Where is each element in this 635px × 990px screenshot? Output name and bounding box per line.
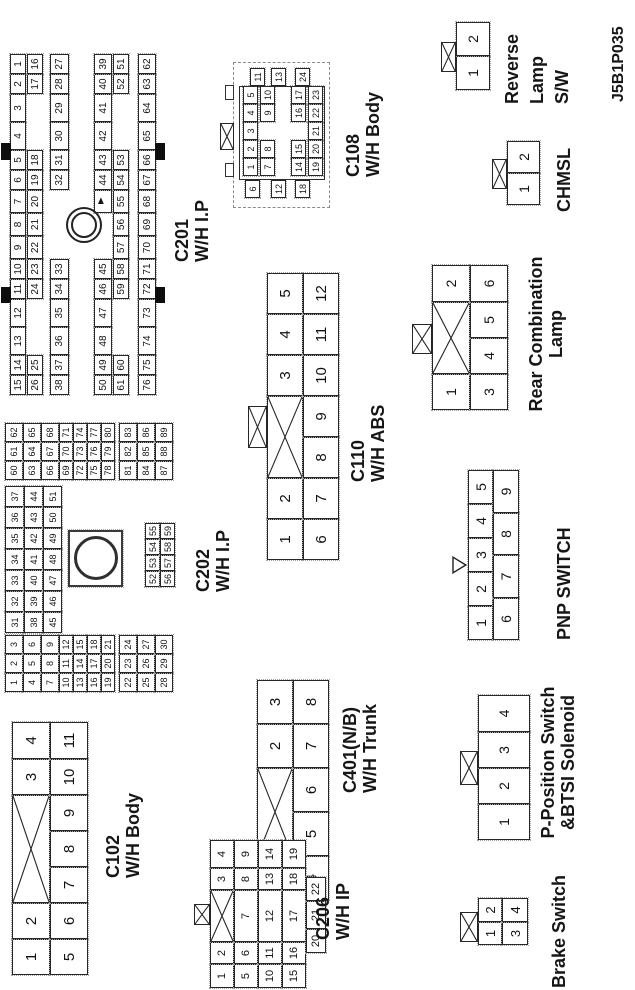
pin-cell: 9 <box>41 635 59 654</box>
pin-cell: 85 <box>137 442 155 461</box>
pin-cell: 12 <box>59 635 73 654</box>
pin-cell: 19 <box>101 673 115 692</box>
pin-cell: 54 <box>113 170 129 190</box>
diagram-board: J5B1P035 1514131211109876543212625242322… <box>0 0 635 990</box>
pin-cell: 5 <box>470 302 508 338</box>
pin-cell: 45 <box>43 612 62 633</box>
pin-cell: 11 <box>59 654 73 673</box>
pin-cell: 57 <box>113 236 129 259</box>
pin-cell: 6 <box>470 265 508 302</box>
pin-cell: 3 <box>468 538 493 572</box>
pin-row: 789 <box>41 635 59 692</box>
pin-cell: 81 <box>119 461 137 480</box>
pin-cell: 3 <box>5 635 23 654</box>
pin-cell: 1 <box>456 56 490 90</box>
pin-cell: 4 <box>23 673 41 692</box>
pin-cell: 38 <box>50 375 69 395</box>
pin-cell: 11 <box>10 279 26 299</box>
pin-cell: 15 <box>282 964 306 988</box>
connector-label-line: C401(N/B) <box>340 704 360 793</box>
pin-cell: 2 <box>478 768 530 804</box>
pin-cell: 10 <box>59 673 73 692</box>
pin-cell: 2 <box>267 478 303 519</box>
keyway-tab-icon <box>460 912 478 942</box>
pin-cell: 8 <box>10 213 26 236</box>
pin-row: 636465 <box>23 423 41 480</box>
connector-label-line: Lamp <box>546 243 566 425</box>
pin-cell: 7 <box>303 478 339 519</box>
pin-cell: 78 <box>101 461 115 480</box>
pin-cell: 37 <box>5 486 24 507</box>
pin-row: 767574737271706968676665646362 <box>138 54 156 395</box>
pin-cell: 51 <box>113 54 129 74</box>
pin-row: 456 <box>23 635 41 692</box>
pin-cell: 40 <box>94 74 112 94</box>
pin-cell: 9 <box>303 396 339 437</box>
pin-cell: 13 <box>10 327 26 355</box>
pin-cell: 19 <box>27 170 43 190</box>
pin-row: 2625242322212019181716 <box>27 54 43 395</box>
connector-label-line: W/H I.P <box>192 200 212 262</box>
pin-cell: 33 <box>50 259 69 279</box>
pin-cell: 14 <box>10 355 26 375</box>
pin-cell: 44 <box>24 486 43 507</box>
pin-cell: 60 <box>5 461 23 480</box>
pin-cell: 9 <box>50 795 88 831</box>
pin-cell: 11 <box>258 942 282 964</box>
pin-gap <box>113 299 129 355</box>
pin-cell: 3 <box>478 732 530 768</box>
keyway-cross-icon <box>432 302 470 374</box>
pin-cell: 71 <box>59 423 73 442</box>
pin-cell: 76 <box>138 375 156 395</box>
orientation-mark-icon <box>94 190 112 213</box>
pin-row: 787980 <box>101 423 115 480</box>
pin-cell: 50 <box>94 375 112 395</box>
pin-cell: 39 <box>94 54 112 74</box>
pin-cell: 67 <box>138 170 156 190</box>
pin-cell: 2 <box>478 898 502 922</box>
connector-label-line: C206 <box>313 883 333 940</box>
pin-cell: 1 <box>468 606 493 640</box>
pin-cell: 75 <box>138 355 156 375</box>
pin-cell: 65 <box>138 122 156 150</box>
pin-row: 1234 <box>12 722 50 975</box>
mount-tab <box>155 143 165 160</box>
index-triangle-icon <box>452 556 467 574</box>
keyway-cross-icon <box>210 890 234 942</box>
pin-cell: 69 <box>59 461 73 480</box>
pin-row: 252627 <box>137 635 155 692</box>
pin-row: 31323334353637 <box>5 486 24 633</box>
connector-label: ReverseLampS/W <box>500 34 575 104</box>
connector-label: C206W/H IP <box>313 883 353 940</box>
pin-cell: 36 <box>50 327 69 355</box>
pin-cell: 9 <box>493 470 519 513</box>
pin-cell: 6 <box>234 942 258 964</box>
connector-label-line: P-Position Switch <box>538 670 558 855</box>
pin-cell: 48 <box>94 327 112 355</box>
pin-cell: 5 <box>10 150 26 170</box>
connector-label-line: Rear Combination <box>526 243 546 425</box>
pin-row: 1234 <box>210 840 234 988</box>
pin-cell: 53 <box>113 150 129 170</box>
connector-label-line: W/H I.P <box>213 530 233 592</box>
pin-cell: 44 <box>94 170 112 190</box>
connector-label: C401(N/B)W/H Trunk <box>340 704 380 793</box>
pin-cell: 5 <box>50 939 88 975</box>
pin-row: 6789 <box>493 470 519 640</box>
pin-cell: 40 <box>24 570 43 591</box>
page-id: J5B1P035 <box>610 26 628 102</box>
connector-label-line: W/H Body <box>363 92 383 177</box>
pin-cell: 16 <box>27 54 43 74</box>
pin-cell: 4 <box>470 338 508 374</box>
pin-cell: 4 <box>12 722 50 759</box>
pin-cell: 13 <box>73 673 87 692</box>
pin-cell: 18 <box>87 635 101 654</box>
pin-cell: 8 <box>493 513 519 555</box>
pin-cell: 34 <box>5 549 24 570</box>
pin-cell: 73 <box>73 442 87 461</box>
pin-cell: 43 <box>94 150 112 170</box>
connector-label-line: C102 <box>103 793 123 878</box>
pin-gap <box>27 299 43 355</box>
pin-cell: 6 <box>10 170 26 190</box>
pin-cell: 15 <box>73 635 87 654</box>
pin-cell: 31 <box>50 150 69 170</box>
pin-cell: 27 <box>50 54 69 74</box>
pin-cell: 1 <box>267 519 303 560</box>
pin-row: 878889 <box>155 423 173 480</box>
pin-row: 45464748495051 <box>43 486 62 633</box>
pin-cell: 74 <box>73 423 87 442</box>
pin-cell: 8 <box>293 680 329 724</box>
pin-cell: 22 <box>27 236 43 259</box>
pin-cell: 79 <box>101 442 115 461</box>
pin-cell: 61 <box>113 375 129 395</box>
pin-cell: 25 <box>27 355 43 375</box>
pin-cell: 13 <box>258 868 282 890</box>
pin-cell: 7 <box>234 890 258 942</box>
pin-cell: 75 <box>87 461 101 480</box>
pin-cell: 41 <box>94 94 112 122</box>
pin-cell: 12 <box>258 890 282 942</box>
pin-row: 12 <box>432 265 470 410</box>
pin-row: 1516171819 <box>282 840 306 988</box>
pin-cell: 35 <box>50 299 69 327</box>
connector-label-line: W/H ABS <box>368 405 388 482</box>
pin-cell: 66 <box>138 150 156 170</box>
pin-cell: 52 <box>113 74 129 94</box>
connector-label-line: &BTSI Solenoid <box>558 670 578 855</box>
pin-cell: 46 <box>94 279 112 299</box>
connector-label-line: Reverse <box>500 34 525 104</box>
pin-cell: 55 <box>113 190 129 213</box>
pin-row: 12345 <box>468 470 493 640</box>
pin-cell: 1 <box>478 922 502 945</box>
pin-row: 12 <box>507 141 540 205</box>
pin-cell: 62 <box>138 54 156 74</box>
pin-cell: 17 <box>27 74 43 94</box>
pin-cell: 6 <box>50 903 88 939</box>
pin-cell: 18 <box>282 868 306 890</box>
pin-cell: 50 <box>43 507 62 528</box>
pin-cell: 32 <box>50 170 69 190</box>
pin-cell: 58 <box>113 259 129 279</box>
pin-cell: 41 <box>24 549 43 570</box>
pin-cell: 71 <box>138 259 156 279</box>
pin-cell: 29 <box>50 94 69 122</box>
pin-cell: 1 <box>432 374 470 410</box>
pin-cell: 12 <box>10 299 26 327</box>
pin-row: 666768 <box>41 423 59 480</box>
pin-row: 56575859 <box>160 523 175 587</box>
pin-row: 222324 <box>119 635 137 692</box>
pin-cell: 21 <box>101 635 115 654</box>
mount-hole-icon <box>68 530 123 587</box>
keyway-tab-icon <box>441 42 456 72</box>
pin-cell: 61 <box>5 442 23 461</box>
pin-cell: 60 <box>113 355 129 375</box>
pin-cell: 56 <box>113 213 129 236</box>
pin-cell: 72 <box>138 279 156 299</box>
pin-cell: 86 <box>137 423 155 442</box>
pin-cell: 4 <box>210 840 234 868</box>
pin-cell: 5 <box>468 470 493 504</box>
pin-cell: 56 <box>160 571 175 587</box>
diagram-page: J5B1P035 1514131211109876543212625242322… <box>0 0 635 990</box>
pin-row: 757677 <box>87 423 101 480</box>
pin-cell: 24 <box>119 635 137 654</box>
connector-label: C201W/H I.P <box>172 200 212 262</box>
connector-body-outline <box>239 86 325 180</box>
keyway-tab-icon <box>248 406 267 448</box>
pin-cell: 67 <box>41 442 59 461</box>
pin-cell: 89 <box>155 423 173 442</box>
pin-cell: 54 <box>145 539 160 555</box>
pin-cell: 4 <box>267 314 303 355</box>
pin-cell: 15 <box>10 375 26 395</box>
connector-label-line: W/H Trunk <box>360 704 380 793</box>
connector-label-line: C108 <box>343 92 363 177</box>
pin-cell: 32 <box>5 591 24 612</box>
pin-cell: 23 <box>27 259 43 279</box>
connector-label-line: C110 <box>348 405 368 482</box>
pin-cell: 64 <box>23 442 41 461</box>
pin-cell: 42 <box>94 122 112 150</box>
pin-cell: 69 <box>138 213 156 236</box>
pin-row: 34 <box>502 898 528 945</box>
pin-cell: 17 <box>87 654 101 673</box>
mount-hole-icon <box>66 207 102 243</box>
keyway-tab-icon <box>412 324 432 354</box>
pin-cell: 1 <box>12 939 50 975</box>
pin-row: 161718 <box>87 635 101 692</box>
pin-cell: 2 <box>10 74 26 94</box>
pin-cell: 74 <box>138 327 156 355</box>
pin-row: 38394041424344 <box>24 486 43 633</box>
pin-row: 101112 <box>59 635 73 692</box>
mount-tab <box>225 163 234 177</box>
pin-cell: 24 <box>27 279 43 299</box>
pin-cell: 9 <box>234 840 258 868</box>
pin-cell: 33 <box>5 570 24 591</box>
pin-cell: 18 <box>27 150 43 170</box>
pin-cell: 5 <box>267 273 303 314</box>
pin-cell: 26 <box>137 654 155 673</box>
pin-row: 282930 <box>155 635 173 692</box>
pin-cell: 2 <box>5 654 23 673</box>
pin-cell: 2 <box>257 724 293 768</box>
mount-tab <box>1 287 11 303</box>
pin-cell: 65 <box>23 423 41 442</box>
pin-cell: 52 <box>145 571 160 587</box>
pin-cell: 51 <box>43 486 62 507</box>
keyway-tab-icon <box>460 751 478 785</box>
pin-cell: 46 <box>43 591 62 612</box>
pin-cell: 87 <box>155 461 173 480</box>
pin-row: 697071 <box>59 423 73 480</box>
pin-cell: 3 <box>267 355 303 396</box>
pin-cell: 48 <box>43 549 62 570</box>
pin-cell: 8 <box>50 831 88 867</box>
pin-cell: 29 <box>155 654 173 673</box>
keyway-tab-icon <box>220 123 234 150</box>
pin-cell: 11 <box>303 314 339 355</box>
pin-cell: 1 <box>478 804 530 840</box>
pin-cell: 14 <box>258 840 282 868</box>
pin-cell: 38 <box>24 612 43 633</box>
pin-cell: 39 <box>24 591 43 612</box>
mount-tab <box>155 287 165 303</box>
pin-cell: 3 <box>470 374 508 410</box>
pin-gap <box>113 94 129 150</box>
pin-row: 52535455 <box>145 523 160 587</box>
pin-cell: 70 <box>138 236 156 259</box>
pin-row: 818283 <box>119 423 137 480</box>
pin-cell: 3 <box>12 759 50 795</box>
mount-tab <box>225 85 234 100</box>
pin-row: 1011121314 <box>258 840 282 988</box>
pin-cell: 42 <box>24 528 43 549</box>
pin-cell: 8 <box>303 437 339 478</box>
pin-cell: 82 <box>119 442 137 461</box>
pin-cell: 25 <box>137 673 155 692</box>
pin-cell: 35 <box>5 528 24 549</box>
pin-cell: 2 <box>12 903 50 939</box>
connector-label: Brake Switch <box>549 875 569 988</box>
pin-cell: 77 <box>87 423 101 442</box>
pin-cell: 20 <box>27 190 43 213</box>
pin-cell: 10 <box>50 759 88 795</box>
connector-label-line: CHMSL <box>554 148 574 212</box>
pin-row: 848586 <box>137 423 155 480</box>
pin-cell: 22 <box>119 673 137 692</box>
pin-row: 1234 <box>478 695 530 840</box>
pin-cell: 23 <box>119 654 137 673</box>
connector-label-line: C202 <box>193 530 213 592</box>
pin-cell: 66 <box>41 461 59 480</box>
pin-cell: 6 <box>493 598 519 640</box>
pin-row: 727374 <box>73 423 87 480</box>
pin-cell: 4 <box>10 122 26 150</box>
pin-row: 3456 <box>470 265 508 410</box>
pin-row: 6789101112 <box>303 273 339 560</box>
pin-cell: 6 <box>23 635 41 654</box>
pin-cell: 4 <box>468 504 493 538</box>
connector-label: PNP SWITCH <box>554 527 574 640</box>
connector-label: C108W/H Body <box>343 92 383 177</box>
pin-cell: 5 <box>23 654 41 673</box>
pin-cell: 83 <box>119 423 137 442</box>
pin-row: 567891011 <box>50 722 88 975</box>
pin-cell: 1 <box>10 54 26 74</box>
pin-cell: 2 <box>468 572 493 606</box>
pin-cell: 19 <box>282 840 306 868</box>
pin-cell: 2 <box>507 141 540 173</box>
pin-cell: 10 <box>10 259 26 279</box>
pin-gap <box>27 94 43 150</box>
pin-cell: 55 <box>145 523 160 539</box>
pin-row: 606162 <box>5 423 23 480</box>
pin-cell: 4 <box>478 695 530 732</box>
pin-cell: 88 <box>155 442 173 461</box>
pin-cell: 3 <box>502 922 528 945</box>
pin-cell: 4 <box>502 898 528 922</box>
pin-cell: 2 <box>432 265 470 302</box>
connector-label-line: C201 <box>172 200 192 262</box>
pin-cell: 16 <box>87 673 101 692</box>
pin-cell: 59 <box>160 523 175 539</box>
pin-cell: 7 <box>41 673 59 692</box>
pin-cell: 68 <box>138 190 156 213</box>
connector-label: C102W/H Body <box>103 793 143 878</box>
pin-cell: 3 <box>10 94 26 122</box>
pin-cell: 7 <box>293 724 329 768</box>
pin-cell: 59 <box>113 279 129 299</box>
pin-cell: 64 <box>138 94 156 122</box>
pin-cell: 63 <box>23 461 41 480</box>
pin-cell: 8 <box>41 654 59 673</box>
pin-cell: 1 <box>5 673 23 692</box>
pin-cell: 7 <box>50 867 88 903</box>
pin-cell: 2 <box>210 942 234 964</box>
mount-tab <box>1 143 11 160</box>
pin-cell: 76 <box>87 442 101 461</box>
connector-label-line: Brake Switch <box>549 875 569 988</box>
pin-cell: 6 <box>303 519 339 560</box>
pin-row: 6160595857565554535251 <box>113 54 129 395</box>
pin-cell: 80 <box>101 423 115 442</box>
pin-cell: 36 <box>5 507 24 528</box>
pin-cell: 7 <box>10 190 26 213</box>
pin-cell: 16 <box>282 942 306 964</box>
pin-cell: 8 <box>234 868 258 890</box>
pin-cell: 47 <box>43 570 62 591</box>
connector-label-line: Lamp <box>525 34 550 104</box>
pin-cell: 1 <box>507 173 540 205</box>
pin-cell: 11 <box>50 722 88 759</box>
keyway-cross-icon <box>12 795 50 903</box>
pin-cell: 47 <box>94 299 112 327</box>
pin-cell: 1 <box>210 964 234 988</box>
pin-cell: 49 <box>43 528 62 549</box>
pin-cell: 9 <box>10 236 26 259</box>
pin-cell: 30 <box>50 122 69 150</box>
pin-cell: 53 <box>145 555 160 571</box>
pin-row: 131415 <box>73 635 87 692</box>
